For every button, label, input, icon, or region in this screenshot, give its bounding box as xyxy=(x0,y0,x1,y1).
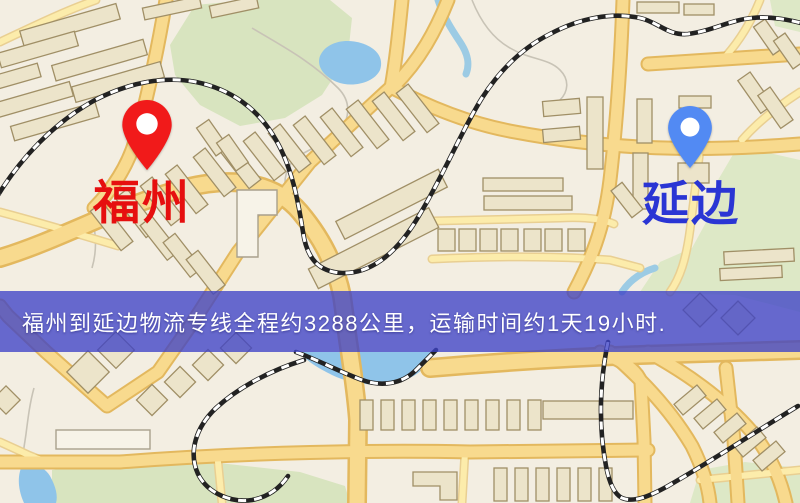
destination-city-label: 延边 xyxy=(642,182,740,229)
map-pin-icon xyxy=(667,106,713,168)
origin-pin[interactable] xyxy=(121,100,173,170)
route-info-banner: 福州到延边物流专线全程约3288公里，运输时间约1天19小时. xyxy=(0,291,800,352)
origin-city-label: 福州 xyxy=(93,181,191,228)
route-info-text: 福州到延边物流专线全程约3288公里，运输时间约1天19小时. xyxy=(22,306,666,338)
map-stage: 福州 延边 福州到延边物流专线全程约3288公里，运输时间约1天19小时. xyxy=(0,0,800,503)
map-canvas xyxy=(0,0,800,503)
map-pin-icon xyxy=(121,100,173,170)
destination-pin[interactable] xyxy=(667,106,713,168)
